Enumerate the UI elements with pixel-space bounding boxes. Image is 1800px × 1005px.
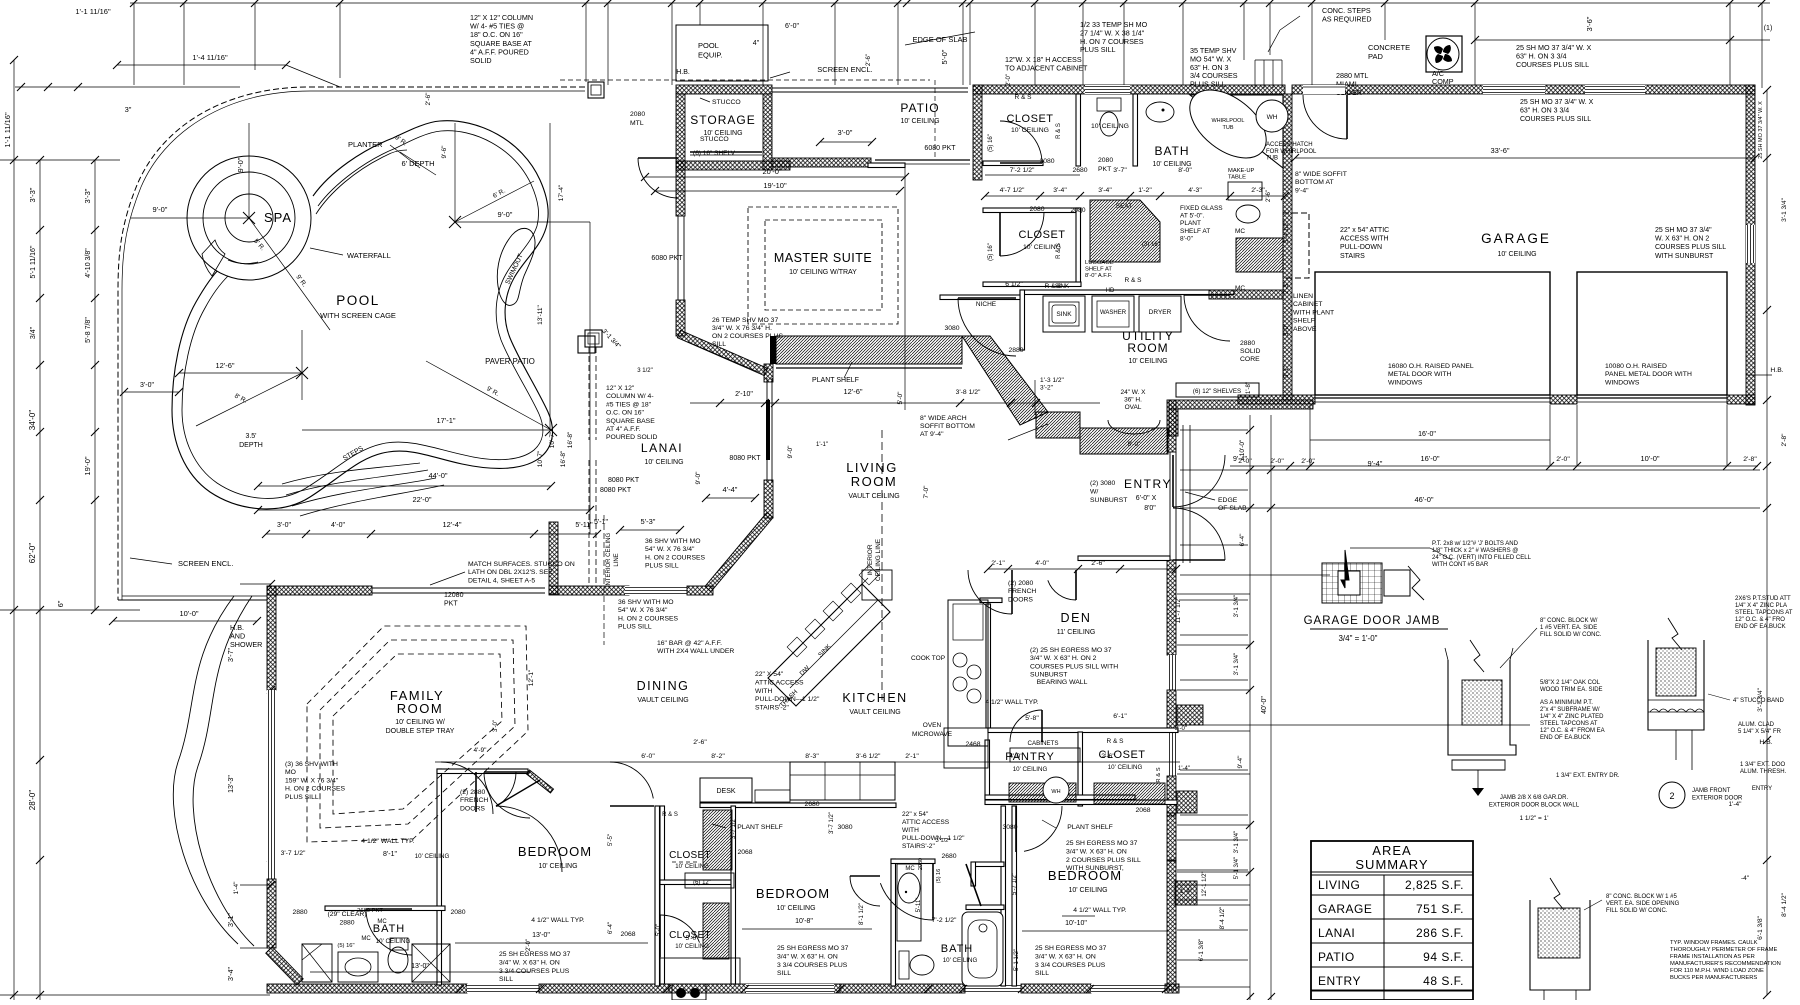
svg-text:STUCCO: STUCCO bbox=[700, 136, 729, 143]
svg-text:CABINETS: CABINETS bbox=[1028, 740, 1059, 747]
svg-text:10' CEILING: 10' CEILING bbox=[1128, 358, 1167, 365]
svg-text:10' CEILING: 10' CEILING bbox=[644, 459, 683, 466]
svg-text:8'-1": 8'-1" bbox=[383, 851, 397, 858]
svg-text:R & S: R & S bbox=[1125, 277, 1143, 284]
svg-text:(5) 16: (5) 16 bbox=[936, 869, 942, 883]
svg-text:9'-0": 9'-0" bbox=[236, 157, 245, 172]
svg-text:LUGGAGESHELF AT8'-0" A.F.F.: LUGGAGESHELF AT8'-0" A.F.F. bbox=[1085, 260, 1114, 279]
svg-text:MC: MC bbox=[361, 936, 371, 942]
svg-text:POOL: POOL bbox=[336, 293, 380, 308]
svg-text:STUCCO: STUCCO bbox=[712, 99, 741, 106]
svg-text:3'-4": 3'-4" bbox=[1053, 187, 1067, 194]
svg-text:751 S.F.: 751 S.F. bbox=[1416, 902, 1464, 916]
svg-text:10' CEILING: 10' CEILING bbox=[900, 118, 939, 125]
svg-text:1'-2": 1'-2" bbox=[1138, 187, 1152, 194]
svg-text:1'-4": 1'-4" bbox=[233, 881, 240, 895]
svg-text:12'-6": 12'-6" bbox=[215, 361, 234, 370]
svg-text:2'-6": 2'-6" bbox=[1091, 560, 1105, 567]
svg-text:5'-0": 5'-0" bbox=[897, 391, 904, 405]
svg-text:CEILING LINE: CEILING LINE bbox=[875, 538, 882, 581]
svg-text:16'-8": 16'-8" bbox=[560, 450, 567, 467]
svg-text:AREA: AREA bbox=[1372, 843, 1411, 858]
svg-text:1'-4": 1'-4" bbox=[1178, 766, 1190, 772]
svg-text:MASTER SUITE: MASTER SUITE bbox=[774, 251, 872, 265]
svg-text:VAULT CEILING: VAULT CEILING bbox=[848, 493, 899, 500]
svg-text:CLOSET: CLOSET bbox=[669, 850, 711, 861]
svg-text:1'-4": 1'-4" bbox=[1729, 801, 1743, 808]
svg-text:SCREEN ENCL.: SCREEN ENCL. bbox=[817, 65, 872, 74]
svg-text:PLANT SHELF: PLANT SHELF bbox=[1067, 824, 1113, 831]
svg-text:LIVING: LIVING bbox=[1318, 878, 1360, 892]
svg-text:12'-4": 12'-4" bbox=[442, 520, 461, 529]
svg-text:12'-1 1/2": 12'-1 1/2" bbox=[1202, 871, 1208, 896]
svg-text:BATH: BATH bbox=[941, 943, 974, 955]
svg-text:7'-0": 7'-0" bbox=[923, 485, 930, 499]
svg-text:VAULT CEILING: VAULT CEILING bbox=[637, 697, 688, 704]
svg-text:3'-7": 3'-7" bbox=[228, 648, 235, 662]
svg-text:PLANTER: PLANTER bbox=[348, 140, 383, 149]
svg-text:10' CEILING: 10' CEILING bbox=[538, 863, 577, 870]
svg-text:4'-0": 4'-0" bbox=[331, 522, 345, 529]
svg-text:2'-6": 2'-6" bbox=[1266, 190, 1272, 202]
svg-text:GARAGE: GARAGE bbox=[1318, 902, 1372, 916]
svg-text:46'-0": 46'-0" bbox=[1414, 495, 1433, 504]
svg-text:3080: 3080 bbox=[837, 824, 852, 831]
svg-text:PLANT SHELF: PLANT SHELF bbox=[812, 377, 859, 384]
svg-text:EDGE OF SLAB: EDGE OF SLAB bbox=[912, 35, 967, 44]
svg-text:9'-4": 9'-4" bbox=[1237, 755, 1244, 769]
svg-text:5'-8 7/8": 5'-8 7/8" bbox=[85, 317, 92, 343]
svg-text:10' CEILING W/TRAY: 10' CEILING W/TRAY bbox=[789, 269, 857, 276]
svg-text:JAMB 2/8 X 6/8 GAR.DR.EXTERIOR: JAMB 2/8 X 6/8 GAR.DR.EXTERIOR DOOR BLOC… bbox=[1489, 795, 1580, 809]
svg-text:GARAGE DOOR JAMB: GARAGE DOOR JAMB bbox=[1304, 615, 1441, 627]
svg-text:3'-4 1/2": 3'-4 1/2" bbox=[1284, 221, 1290, 243]
svg-text:3'-8 1/2": 3'-8 1/2" bbox=[956, 389, 981, 396]
svg-text:MC: MC bbox=[905, 866, 915, 872]
svg-text:(6) 16" SHELV: (6) 16" SHELV bbox=[693, 150, 736, 157]
svg-text:DOUBLE STEP TRAY: DOUBLE STEP TRAY bbox=[386, 728, 455, 735]
svg-text:10' CEILING: 10' CEILING bbox=[675, 944, 709, 950]
svg-text:2'-3": 2'-3" bbox=[1251, 187, 1265, 194]
svg-text:ENTRY: ENTRY bbox=[1752, 786, 1772, 792]
svg-text:286 S.F.: 286 S.F. bbox=[1416, 926, 1464, 940]
svg-text:2'-10": 2'-10" bbox=[735, 391, 753, 398]
svg-text:3'-0": 3'-0" bbox=[493, 720, 499, 732]
svg-text:LANAI: LANAI bbox=[1318, 926, 1355, 940]
svg-text:8'-1 1/2": 8'-1 1/2" bbox=[859, 903, 865, 925]
svg-text:4 1/2" WALL TYP.: 4 1/2" WALL TYP. bbox=[1073, 907, 1127, 914]
svg-text:2068: 2068 bbox=[737, 849, 752, 856]
svg-text:H.B.: H.B. bbox=[676, 69, 690, 76]
svg-text:2,825 S.F.: 2,825 S.F. bbox=[1405, 878, 1464, 892]
svg-text:5'-0": 5'-0" bbox=[940, 49, 949, 64]
svg-text:13'-3": 13'-3" bbox=[228, 775, 235, 793]
svg-text:2'-6": 2'-6" bbox=[866, 54, 872, 66]
svg-text:17'-1": 17'-1" bbox=[436, 416, 455, 425]
svg-text:10' CEILING: 10' CEILING bbox=[943, 957, 978, 964]
svg-text:8'-2": 8'-2" bbox=[711, 753, 725, 760]
svg-text:3/4": 3/4" bbox=[30, 326, 37, 339]
svg-text:4'-10 3/8": 4'-10 3/8" bbox=[85, 248, 92, 278]
svg-text:2'-1": 2'-1" bbox=[905, 753, 919, 760]
svg-text:10'-8": 10'-8" bbox=[795, 918, 813, 925]
svg-text:2'-1": 2'-1" bbox=[991, 560, 1005, 567]
svg-text:2080: 2080 bbox=[1039, 158, 1054, 165]
svg-text:2'-3": 2'-3" bbox=[1284, 282, 1290, 294]
svg-text:COOK TOP: COOK TOP bbox=[911, 655, 945, 662]
svg-text:10'-10": 10'-10" bbox=[1065, 920, 1087, 927]
svg-text:19'-10": 19'-10" bbox=[763, 181, 787, 190]
svg-text:(6) 12" SHELVES: (6) 12" SHELVES bbox=[1193, 388, 1241, 395]
svg-text:BATH: BATH bbox=[1154, 144, 1189, 158]
svg-text:20'-0": 20'-0" bbox=[762, 167, 781, 176]
svg-text:6": 6" bbox=[56, 600, 65, 607]
svg-text:10' CEILING: 10' CEILING bbox=[1091, 123, 1129, 130]
svg-text:INTERIOR CEILING: INTERIOR CEILING bbox=[606, 532, 612, 587]
svg-text:5'-0": 5'-0" bbox=[656, 924, 662, 936]
svg-text:1'-1": 1'-1" bbox=[816, 442, 828, 448]
svg-text:10'-7": 10'-7" bbox=[537, 450, 544, 467]
svg-text:3'-3": 3'-3" bbox=[83, 188, 92, 203]
svg-text:R & S: R & S bbox=[1056, 243, 1062, 259]
svg-text:ENTRY: ENTRY bbox=[1318, 974, 1361, 988]
svg-text:1'-8": 1'-8" bbox=[1246, 382, 1252, 394]
svg-text:(5) 16": (5) 16" bbox=[337, 943, 354, 949]
svg-text:5'-5": 5'-5" bbox=[607, 834, 614, 846]
svg-text:2'-0": 2'-0" bbox=[1006, 74, 1012, 86]
svg-text:TUB: TUB bbox=[1223, 125, 1234, 131]
svg-text:3'-6": 3'-6" bbox=[1585, 16, 1594, 31]
svg-text:HD: HD bbox=[1106, 288, 1115, 294]
svg-text:NICHE: NICHE bbox=[976, 301, 997, 308]
svg-text:8080 PKT: 8080 PKT bbox=[729, 455, 761, 462]
svg-text:H.B.: H.B. bbox=[1770, 367, 1783, 374]
svg-text:2'-0": 2'-0" bbox=[526, 939, 532, 951]
svg-text:16'-8": 16'-8" bbox=[567, 431, 574, 448]
svg-text:10' CEILING: 10' CEILING bbox=[1068, 887, 1107, 894]
svg-text:6'-0": 6'-0" bbox=[641, 753, 655, 760]
svg-text:2080: 2080 bbox=[450, 909, 465, 916]
svg-text:5'-1 1/2": 5'-1 1/2" bbox=[1014, 949, 1020, 971]
svg-text:10' CEILING: 10' CEILING bbox=[376, 938, 411, 945]
svg-text:2068: 2068 bbox=[1135, 807, 1150, 814]
svg-text:DEPTH: DEPTH bbox=[239, 442, 263, 449]
svg-text:1'-1 11/16": 1'-1 11/16" bbox=[75, 7, 111, 16]
svg-text:22'-0": 22'-0" bbox=[412, 495, 431, 504]
svg-text:3'-7": 3'-7" bbox=[1113, 167, 1127, 174]
svg-text:9'-4": 9'-4" bbox=[1368, 459, 1383, 468]
svg-text:DEN: DEN bbox=[1061, 611, 1092, 625]
svg-text:PATIO: PATIO bbox=[1318, 950, 1355, 964]
svg-text:4'-0": 4'-0" bbox=[1035, 560, 1049, 567]
svg-text:8'-4 1/2": 8'-4 1/2" bbox=[1219, 907, 1226, 930]
svg-text:8" CONC. BLOCK W/1 #5 VERT. EA: 8" CONC. BLOCK W/1 #5 VERT. EA. SIDEFILL… bbox=[1540, 618, 1602, 638]
svg-text:MC: MC bbox=[1235, 228, 1245, 235]
svg-text:R & S: R & S bbox=[1107, 738, 1125, 745]
svg-text:WHIRLPOOL: WHIRLPOOL bbox=[1211, 118, 1244, 124]
svg-text:PAVER PATIO: PAVER PATIO bbox=[485, 357, 535, 366]
svg-text:BEDROOM: BEDROOM bbox=[518, 844, 592, 859]
svg-text:3'-7 1/2": 3'-7 1/2" bbox=[829, 812, 835, 834]
svg-text:R & S: R & S bbox=[662, 812, 678, 818]
svg-text:4" STUCCO BAND: 4" STUCCO BAND bbox=[1733, 698, 1784, 704]
svg-text:1'-1 11/16": 1'-1 11/16" bbox=[3, 112, 12, 148]
svg-text:BEARING WALL: BEARING WALL bbox=[1037, 679, 1088, 686]
svg-text:16'-0": 16'-0" bbox=[1418, 431, 1436, 438]
svg-text:10' CEILING: 10' CEILING bbox=[415, 853, 450, 860]
svg-text:1 3/4" EXT. DOOALUM. THRESH.: 1 3/4" EXT. DOOALUM. THRESH. bbox=[1740, 762, 1787, 775]
svg-text:1 3/4" EXT. ENTRY DR.: 1 3/4" EXT. ENTRY DR. bbox=[1556, 773, 1620, 779]
svg-text:4'-0": 4'-0" bbox=[1009, 753, 1023, 760]
svg-text:3'-1 3/4": 3'-1 3/4" bbox=[1781, 197, 1788, 221]
svg-text:6'-0" X: 6'-0" X bbox=[1136, 495, 1157, 502]
svg-text:R & S: R & S bbox=[1156, 767, 1162, 782]
svg-text:2680 PKT: 2680 PKT bbox=[357, 908, 383, 914]
svg-text:LIVING: LIVING bbox=[846, 460, 898, 475]
svg-text:3 1/2": 3 1/2" bbox=[936, 838, 951, 844]
svg-text:3'-0": 3'-0" bbox=[1284, 324, 1290, 336]
svg-text:SPA: SPA bbox=[264, 210, 292, 225]
svg-text:48 S.F.: 48 S.F. bbox=[1423, 974, 1464, 988]
svg-text:16'-0": 16'-0" bbox=[1420, 454, 1439, 463]
svg-text:3'-6 1/2": 3'-6 1/2" bbox=[856, 753, 881, 760]
svg-text:4 1/2" WALL TYP.: 4 1/2" WALL TYP. bbox=[361, 838, 415, 845]
svg-text:CLOSET: CLOSET bbox=[1006, 113, 1053, 125]
svg-text:H.B.: H.B. bbox=[1759, 739, 1772, 746]
svg-text:POOLEQUIP.: POOLEQUIP. bbox=[698, 41, 722, 60]
svg-text:2X6'S P.T.STUD ATT1/4" X 4" ZI: 2X6'S P.T.STUD ATT1/4" X 4" ZINC PLASTEE… bbox=[1735, 596, 1793, 630]
svg-text:12"W. X 18" H ACCESSTO ADJACEN: 12"W. X 18" H ACCESSTO ADJACENT CABINET bbox=[1005, 55, 1088, 72]
svg-text:3'-4": 3'-4" bbox=[1098, 187, 1112, 194]
svg-text:3'-1": 3'-1" bbox=[1284, 366, 1290, 378]
svg-text:9'-0": 9'-0" bbox=[787, 445, 794, 459]
svg-text:11' CEILING: 11' CEILING bbox=[1057, 629, 1096, 636]
svg-text:1'-4": 1'-4" bbox=[1180, 889, 1192, 895]
svg-text:10'-7": 10'-7" bbox=[549, 431, 556, 448]
svg-text:5'-7 1/2": 5'-7 1/2" bbox=[1012, 873, 1018, 895]
svg-text:SUMMARY: SUMMARY bbox=[1355, 857, 1428, 872]
svg-text:94 S.F.: 94 S.F. bbox=[1423, 950, 1464, 964]
svg-text:10' CEILING W/: 10' CEILING W/ bbox=[395, 719, 445, 726]
svg-text:2'-6": 2'-6" bbox=[1101, 753, 1115, 760]
svg-text:WASHER: WASHER bbox=[1100, 310, 1127, 316]
svg-text:2'-0": 2'-0" bbox=[1556, 456, 1570, 463]
svg-text:2880: 2880 bbox=[292, 909, 307, 916]
svg-text:2068: 2068 bbox=[620, 931, 635, 938]
svg-text:3'-0": 3'-0" bbox=[277, 522, 291, 529]
svg-text:9'-0": 9'-0" bbox=[498, 210, 513, 219]
svg-text:6080 PKT: 6080 PKT bbox=[651, 255, 683, 262]
svg-text:STORAGE: STORAGE bbox=[690, 113, 755, 127]
svg-text:4 1/2" WALL TYP.: 4 1/2" WALL TYP. bbox=[531, 917, 585, 924]
svg-text:2: 2 bbox=[1669, 791, 1674, 801]
svg-text:9'-6": 9'-6" bbox=[441, 145, 448, 159]
svg-text:SINK: SINK bbox=[1055, 284, 1069, 290]
svg-text:28'-0": 28'-0" bbox=[28, 790, 37, 811]
svg-text:8'-0": 8'-0" bbox=[1178, 167, 1192, 174]
svg-text:OVEN: OVEN bbox=[923, 722, 942, 729]
svg-text:2080: 2080 bbox=[918, 858, 924, 870]
svg-text:10'-0": 10'-0" bbox=[1239, 439, 1246, 456]
svg-text:(5) 16": (5) 16" bbox=[988, 243, 994, 261]
svg-text:5'-1": 5'-1" bbox=[594, 519, 608, 526]
svg-text:2680: 2680 bbox=[941, 853, 956, 860]
svg-text:7'-2 1/2": 7'-2 1/2" bbox=[932, 917, 957, 924]
svg-text:2'-6": 2'-6" bbox=[693, 739, 707, 746]
svg-text:9'-0": 9'-0" bbox=[153, 205, 168, 214]
svg-text:(2) 2080FRENCHDOORS: (2) 2080FRENCHDOORS bbox=[1008, 580, 1036, 603]
svg-text:DESK: DESK bbox=[716, 788, 735, 795]
svg-text:10' CEILING: 10' CEILING bbox=[1011, 127, 1049, 134]
svg-text:2'-0": 2'-0" bbox=[1270, 458, 1284, 465]
svg-text:10' CEILING: 10' CEILING bbox=[1497, 251, 1536, 258]
svg-text:8080 PKT: 8080 PKT bbox=[608, 477, 640, 484]
svg-text:2'-8": 2'-8" bbox=[1743, 456, 1757, 463]
svg-text:6'-0": 6'-0" bbox=[785, 23, 799, 30]
svg-text:MC: MC bbox=[377, 919, 387, 925]
svg-text:5'-11": 5'-11" bbox=[916, 898, 922, 913]
svg-text:4 1/2" WALL TYP.: 4 1/2" WALL TYP. bbox=[985, 699, 1039, 706]
svg-text:MICROWAVE: MICROWAVE bbox=[912, 731, 953, 738]
svg-text:6'-1 3/8": 6'-1 3/8" bbox=[1757, 915, 1764, 939]
svg-text:ENTRY: ENTRY bbox=[1124, 477, 1172, 491]
svg-text:(1): (1) bbox=[1764, 25, 1773, 32]
svg-text:2680: 2680 bbox=[1072, 167, 1087, 174]
svg-text:DINING: DINING bbox=[637, 679, 690, 693]
svg-text:3080: 3080 bbox=[944, 325, 959, 332]
svg-text:6'-1": 6'-1" bbox=[1113, 713, 1127, 720]
svg-text:6080 PKT: 6080 PKT bbox=[924, 145, 956, 152]
svg-text:2080: 2080 bbox=[1029, 206, 1044, 213]
svg-text:5'-3": 5'-3" bbox=[641, 517, 656, 526]
svg-text:PATIO: PATIO bbox=[900, 101, 939, 115]
svg-text:2'-6": 2'-6" bbox=[425, 92, 432, 106]
svg-text:13'-0": 13'-0" bbox=[532, 932, 550, 939]
svg-text:34'-0": 34'-0" bbox=[28, 410, 37, 431]
svg-text:LANAI: LANAI bbox=[641, 441, 683, 455]
svg-text:10' CEILING: 10' CEILING bbox=[675, 864, 709, 870]
svg-text:9'-0": 9'-0" bbox=[695, 471, 702, 485]
svg-text:BEDROOM: BEDROOM bbox=[756, 886, 830, 901]
svg-text:2680: 2680 bbox=[804, 801, 819, 808]
svg-text:12'-1": 12'-1" bbox=[528, 669, 535, 686]
svg-text:12'-6": 12'-6" bbox=[843, 387, 862, 396]
svg-text:(2) 2880FRENCHDOORS: (2) 2880FRENCHDOORS bbox=[460, 789, 488, 812]
svg-text:3": 3" bbox=[125, 105, 132, 114]
svg-text:3.5': 3.5' bbox=[245, 433, 256, 440]
svg-text:5'-1 11/16": 5'-1 11/16" bbox=[30, 245, 37, 278]
svg-text:R & S: R & S bbox=[1056, 123, 1062, 139]
svg-text:CLOSET: CLOSET bbox=[1018, 229, 1065, 241]
svg-text:-4": -4" bbox=[1741, 875, 1750, 882]
svg-text:8'-4 1/2": 8'-4 1/2" bbox=[1781, 892, 1788, 916]
svg-text:3'-0": 3'-0" bbox=[838, 128, 853, 137]
svg-text:3'-1 3/4": 3'-1 3/4" bbox=[1233, 653, 1240, 676]
svg-text:10' CEILING: 10' CEILING bbox=[1108, 764, 1143, 771]
svg-text:LINE: LINE bbox=[614, 553, 620, 566]
svg-text:2880: 2880 bbox=[1008, 347, 1023, 354]
svg-text:5/8"X 2 1/4" OAK COLWOOD TRIM: 5/8"X 2 1/4" OAK COLWOOD TRIM EA. SIDE bbox=[1540, 680, 1603, 693]
svg-text:3 1/2": 3 1/2" bbox=[637, 368, 652, 374]
svg-text:6'-4": 6'-4" bbox=[1239, 533, 1246, 547]
svg-text:4": 4" bbox=[753, 40, 760, 47]
svg-text:5'-11": 5'-11" bbox=[575, 522, 593, 529]
svg-text:2'-8": 2'-8" bbox=[1781, 433, 1788, 447]
svg-text:2080: 2080 bbox=[1070, 207, 1085, 214]
svg-text:3'-4": 3'-4" bbox=[228, 967, 235, 981]
svg-text:ROOM: ROOM bbox=[1127, 341, 1168, 355]
svg-text:3'-0": 3'-0" bbox=[140, 382, 154, 389]
svg-text:PLANT SHELF: PLANT SHELF bbox=[737, 824, 783, 831]
svg-text:(3) 16": (3) 16" bbox=[1142, 242, 1160, 248]
svg-text:10'-0": 10'-0" bbox=[179, 609, 198, 618]
svg-text:25 SH MO 37 3/4" W. X: 25 SH MO 37 3/4" W. X bbox=[1758, 101, 1764, 159]
svg-text:6 1/2": 6 1/2" bbox=[1005, 281, 1023, 288]
svg-text:SCREEN ENCL.: SCREEN ENCL. bbox=[178, 559, 233, 568]
svg-text:VAULT CEILING: VAULT CEILING bbox=[849, 709, 900, 716]
svg-text:13'-11": 13'-11" bbox=[537, 304, 544, 324]
svg-text:SEAT: SEAT bbox=[1116, 203, 1133, 210]
svg-text:WITH SCREEN CAGE: WITH SCREEN CAGE bbox=[320, 311, 396, 320]
svg-text:WH: WH bbox=[1267, 114, 1278, 121]
svg-text:6'-4": 6'-4" bbox=[607, 922, 614, 934]
svg-text:DRYER: DRYER bbox=[1149, 309, 1172, 316]
svg-text:R & S: R & S bbox=[1015, 94, 1033, 101]
svg-text:2'-0": 2'-0" bbox=[1175, 726, 1187, 732]
svg-text:7'-2 1/2": 7'-2 1/2" bbox=[1010, 167, 1035, 174]
svg-text:ROOM: ROOM bbox=[851, 474, 897, 489]
svg-text:3'-7 1/2": 3'-7 1/2" bbox=[281, 850, 306, 857]
svg-text:1 1/2" = 1': 1 1/2" = 1' bbox=[1519, 815, 1548, 822]
svg-text:SINK: SINK bbox=[1056, 311, 1072, 318]
svg-text:13'-0": 13'-0" bbox=[411, 963, 429, 970]
svg-text:(5) 16": (5) 16" bbox=[988, 134, 994, 152]
svg-text:3'-3": 3'-3" bbox=[28, 187, 37, 202]
svg-text:ROOM: ROOM bbox=[397, 701, 443, 716]
svg-text:1'-4 11/16": 1'-4 11/16" bbox=[192, 53, 228, 62]
svg-text:3080: 3080 bbox=[1002, 824, 1017, 831]
svg-text:4'-7 1/2": 4'-7 1/2" bbox=[1000, 187, 1025, 194]
svg-text:4'-4": 4'-4" bbox=[723, 485, 738, 494]
svg-text:WH: WH bbox=[1051, 789, 1060, 795]
svg-text:8'0": 8'0" bbox=[1144, 505, 1156, 512]
svg-text:44'-0": 44'-0" bbox=[428, 471, 447, 480]
svg-text:4'-3": 4'-3" bbox=[1188, 187, 1202, 194]
svg-text:2468: 2468 bbox=[965, 741, 980, 748]
svg-text:3/4" = 1'-0": 3/4" = 1'-0" bbox=[1338, 634, 1377, 643]
svg-text:INTERIOR: INTERIOR bbox=[867, 544, 874, 575]
svg-text:8'-0": 8'-0" bbox=[1128, 441, 1142, 448]
svg-text:10'-0": 10'-0" bbox=[1640, 454, 1659, 463]
svg-text:62'-0": 62'-0" bbox=[28, 543, 37, 564]
svg-text:6'-1 3/8": 6'-1 3/8" bbox=[1198, 939, 1205, 962]
svg-text:8080 PKT: 8080 PKT bbox=[600, 487, 632, 494]
svg-text:CONC. STEPSAS REQUIRED: CONC. STEPSAS REQUIRED bbox=[1322, 6, 1372, 23]
svg-text:KITCHEN: KITCHEN bbox=[842, 691, 907, 705]
svg-text:10' CEILING: 10' CEILING bbox=[1013, 766, 1048, 773]
svg-text:3'-1 3/4": 3'-1 3/4" bbox=[1233, 831, 1240, 854]
svg-text:WATERFALL: WATERFALL bbox=[347, 251, 391, 260]
svg-text:17'-4": 17'-4" bbox=[558, 184, 565, 201]
svg-text:(6) 12": (6) 12" bbox=[693, 880, 711, 886]
svg-text:CLOSET: CLOSET bbox=[669, 930, 711, 941]
svg-text:2'-0": 2'-0" bbox=[1301, 458, 1315, 465]
svg-text:10' CEILING: 10' CEILING bbox=[776, 905, 815, 912]
svg-text:4'-9": 4'-9" bbox=[474, 747, 488, 754]
svg-text:5'-1 3/4": 5'-1 3/4" bbox=[1233, 857, 1240, 880]
svg-text:5'-8": 5'-8" bbox=[1025, 715, 1039, 722]
svg-text:3'-7 1/2": 3'-7 1/2" bbox=[731, 817, 737, 839]
